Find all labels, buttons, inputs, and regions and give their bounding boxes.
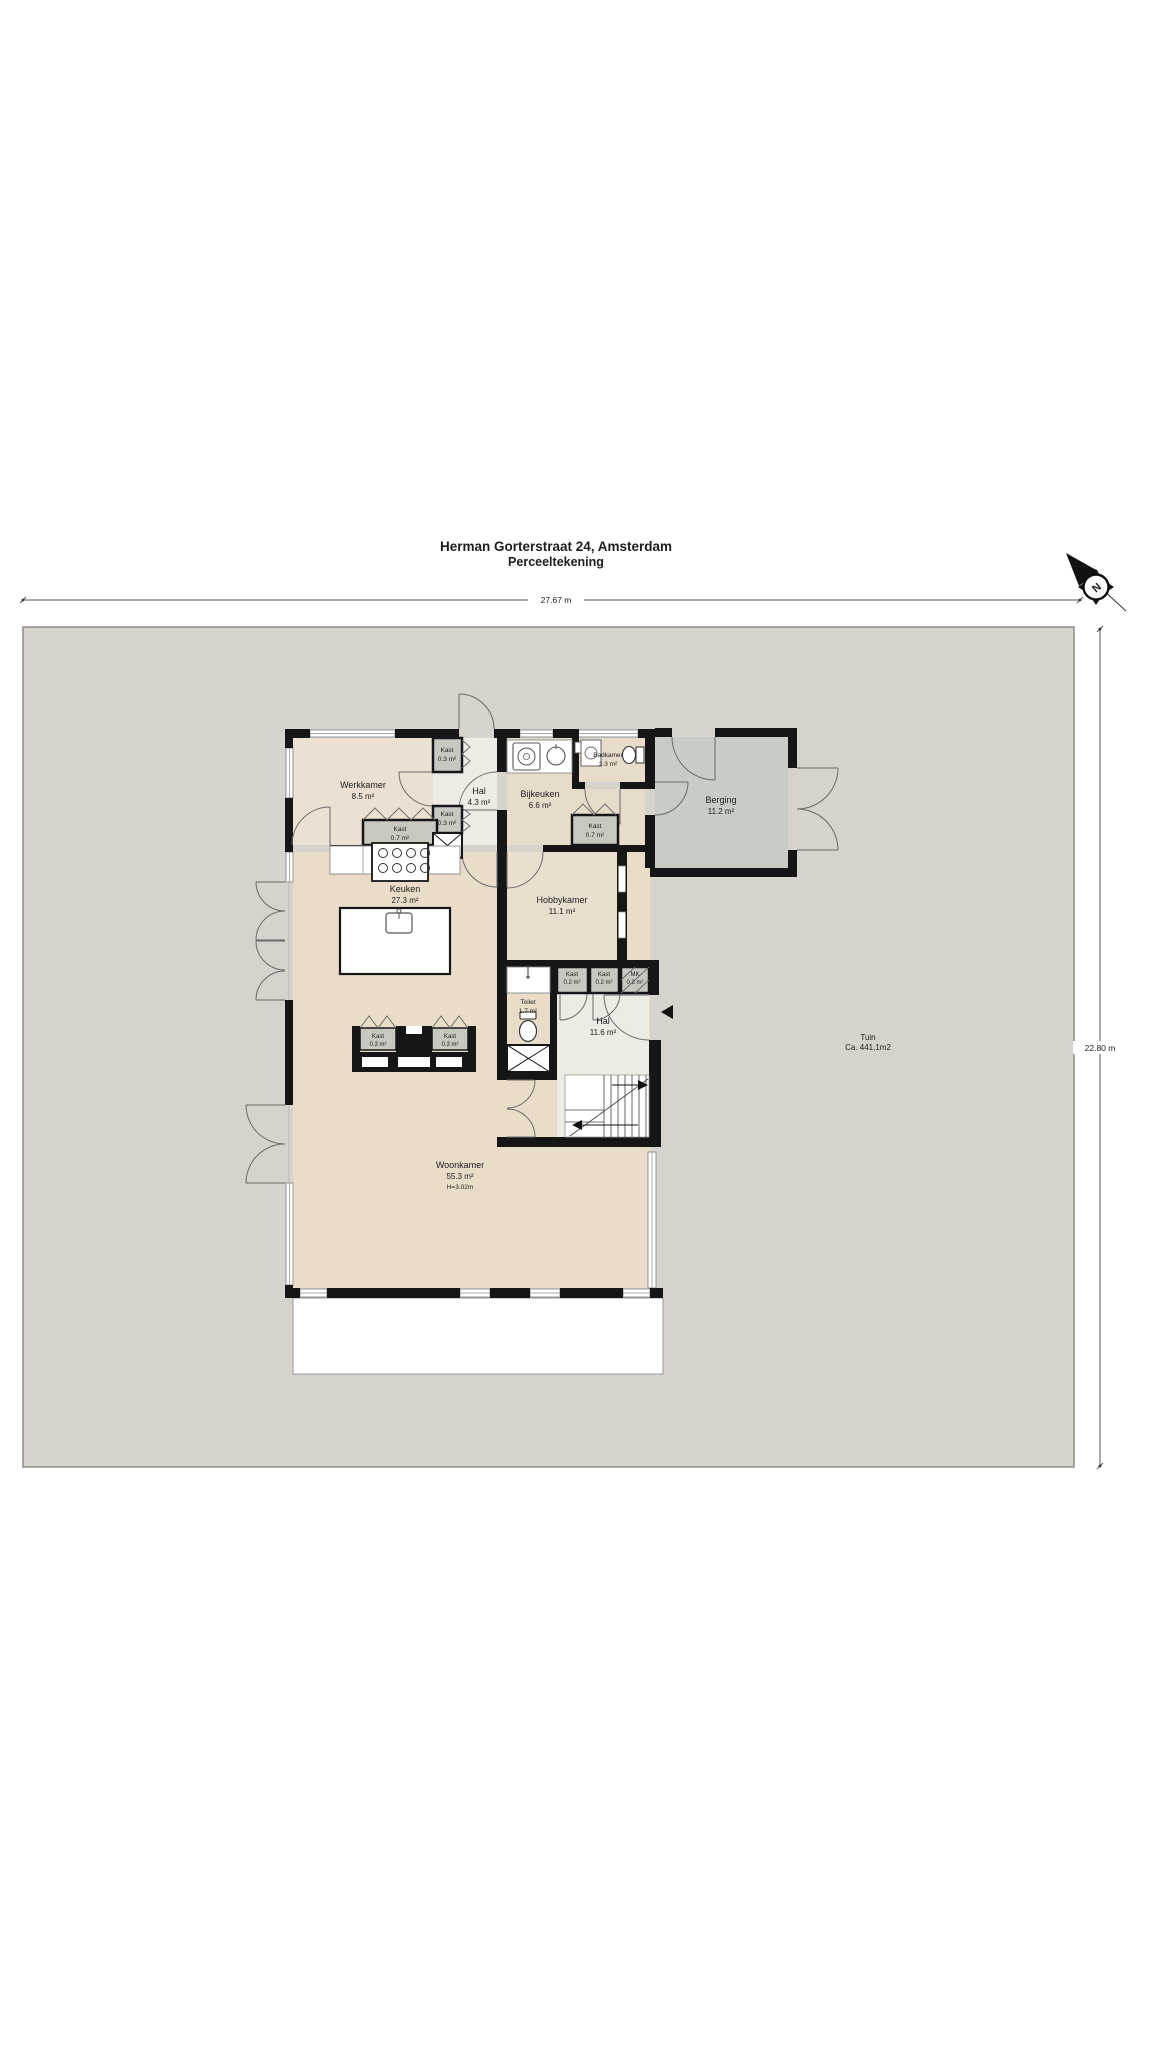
- label-kast-w2-name: Kast: [444, 1034, 456, 1040]
- page-title: Herman Gorterstraat 24, Amsterdam: [440, 539, 672, 554]
- utility-sink-icon: [547, 747, 565, 765]
- label-hobbykamer-name: Hobbykamer: [536, 895, 587, 905]
- washer-icon: [513, 743, 540, 770]
- wc-bowl-icon: [623, 747, 636, 764]
- label-hobbykamer-area: 11.1 m²: [549, 907, 576, 916]
- cooktop-icon: [372, 843, 428, 881]
- label-woonkamer-height: H=3.02m: [447, 1184, 474, 1191]
- label-toilet-area: 1.7 m²: [519, 1008, 538, 1015]
- title-block: Herman Gorterstraat 24, Amsterdam Percee…: [440, 539, 672, 569]
- dimension-height-label: 22.80 m: [1085, 1043, 1116, 1053]
- label-garden-area: Ca. 441,1m2: [845, 1043, 891, 1052]
- label-woonkamer-name: Woonkamer: [436, 1160, 484, 1170]
- label-berging-name: Berging: [705, 795, 736, 805]
- label-hal-voor-area: 4.3 m²: [468, 798, 491, 807]
- label-kast-werkkamer-area: 0.7 m²: [391, 835, 410, 842]
- label-kast-werkkamer-name: Kast: [393, 826, 406, 833]
- label-garden-name: Tuin: [860, 1033, 875, 1042]
- label-toilet-name: Toilet: [520, 999, 535, 1006]
- label-badkamer-area: 2.3 m²: [599, 761, 618, 768]
- kitchen-island: [340, 908, 450, 974]
- label-meterkast-name: MK: [631, 972, 640, 978]
- label-werkkamer-area: 8.5 m²: [352, 792, 375, 801]
- label-werkkamer-name: Werkkamer: [340, 780, 386, 790]
- label-kast2-name: Kast: [598, 972, 610, 978]
- label-kast1-name: Kast: [566, 972, 578, 978]
- label-hal-achter-name: Hal: [596, 1016, 610, 1026]
- label-kast-boven-area: 0.3 m²: [438, 756, 457, 763]
- label-badkamer-name: Badkamer: [593, 752, 623, 759]
- label-kast1-area: 0.2 m²: [563, 980, 580, 986]
- label-hal-achter-area: 11.6 m²: [590, 1028, 617, 1037]
- page-subtitle: Perceeltekening: [508, 555, 604, 569]
- wc-tank-icon: [636, 747, 644, 763]
- label-kast-bijkeuken-area: 0.7 m²: [586, 832, 605, 839]
- label-keuken-name: Keuken: [390, 884, 421, 894]
- label-woonkamer-area: 55.3 m²: [446, 1172, 473, 1181]
- toilet-bowl-icon: [520, 1021, 537, 1042]
- label-kast-onder-name: Kast: [440, 811, 453, 818]
- label-bijkeuken-name: Bijkeuken: [520, 789, 559, 799]
- label-kast-onder-area: 0.3 m²: [438, 820, 457, 827]
- label-hal-voor-name: Hal: [472, 786, 486, 796]
- label-meterkast-area: 0.3 m²: [626, 980, 643, 986]
- dimension-width-label: 27.67 m: [541, 595, 572, 605]
- north-compass-icon: N: [1066, 553, 1126, 611]
- label-kast-w1-name: Kast: [372, 1034, 384, 1040]
- terrace: [293, 1298, 663, 1374]
- floorplan-page: Herman Gorterstraat 24, Amsterdam Percee…: [0, 0, 1152, 2048]
- label-keuken-area: 27.3 m²: [391, 896, 418, 905]
- staircase: [565, 1075, 649, 1137]
- label-kast2-area: 0.2 m²: [595, 980, 612, 986]
- label-kast-w2-area: 0.3 m²: [441, 1042, 458, 1048]
- label-kast-w1-area: 0.3 m²: [369, 1042, 386, 1048]
- label-kast-bijkeuken-name: Kast: [588, 823, 601, 830]
- label-bijkeuken-area: 6.6 m²: [529, 801, 552, 810]
- label-kast-boven-name: Kast: [440, 747, 453, 754]
- label-berging-area: 11.2 m²: [708, 807, 735, 816]
- floorplan-drawing: Herman Gorterstraat 24, Amsterdam Percee…: [0, 0, 1152, 2048]
